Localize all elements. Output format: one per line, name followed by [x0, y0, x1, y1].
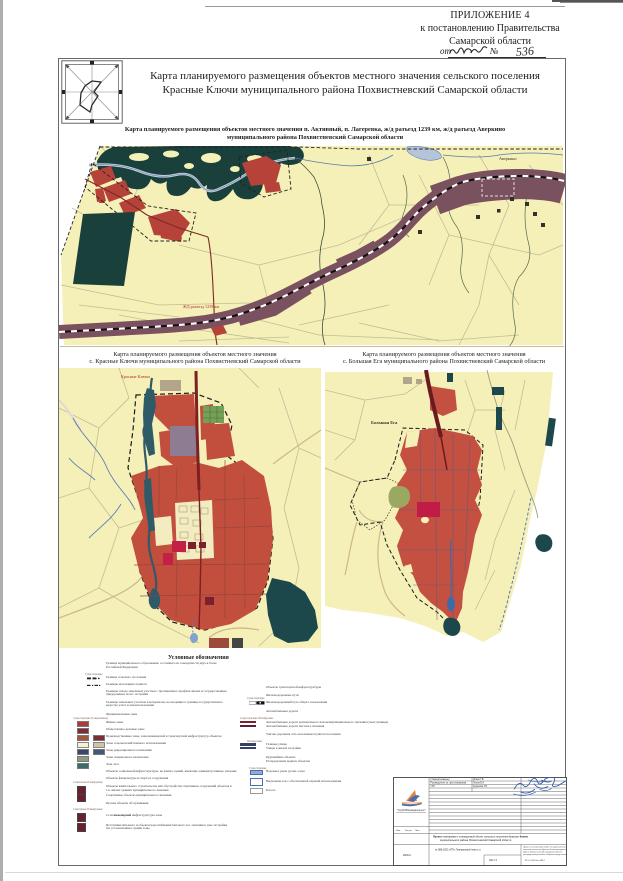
- svg-text:Изм.: Изм.: [396, 830, 401, 832]
- svg-text:Красные Ключи: Красные Ключи: [121, 374, 151, 379]
- svg-text:Лист: Лист: [415, 830, 420, 832]
- svg-text:№: №: [489, 46, 499, 56]
- svg-text:от: от: [440, 46, 452, 56]
- svg-text:№ 586-2023 «ПП» Генеральный пл: № 586-2023 «ПП» Генеральный план с.п.: [435, 849, 481, 852]
- svg-text:"ТеррНИИгражданпроект": "ТеррНИИгражданпроект": [397, 809, 426, 812]
- svg-text:Кол.уч.: Кол.уч.: [405, 830, 413, 832]
- svg-text:Попов Е.Н.: Попов Е.Н.: [473, 783, 485, 785]
- svg-text:муниципального района Похвистн: муниципального района Похвистневский Сам…: [440, 839, 512, 842]
- svg-text:Главный инженер: Главный инженер: [431, 778, 451, 781]
- svg-text:Аверкино: Аверкино: [499, 156, 517, 161]
- svg-text:Руководитель гр. арх.планировк: Руководитель гр. арх.планировки: [431, 783, 467, 785]
- svg-text:Большая Ега: Большая Ега: [371, 420, 398, 425]
- svg-text:Лист 4: Лист 4: [489, 858, 497, 862]
- svg-text:Кудинова Г.В.: Кудинова Г.В.: [473, 786, 488, 788]
- svg-text:Исаев Г.В.: Исаев Г.В.: [473, 779, 484, 781]
- svg-text:утвержденный решением Собрания: утвержденный решением Собрания представи…: [523, 853, 567, 856]
- svg-text:ЖД разъезд 1239 км: ЖД разъезд 1239 км: [183, 304, 219, 309]
- svg-text:536: 536: [515, 44, 534, 60]
- svg-text:М 1:5 000 Кол 4813: М 1:5 000 Кол 4813: [525, 860, 545, 862]
- svg-text:2024 г: 2024 г: [403, 853, 412, 857]
- svg-text:ГАП: ГАП: [431, 785, 436, 788]
